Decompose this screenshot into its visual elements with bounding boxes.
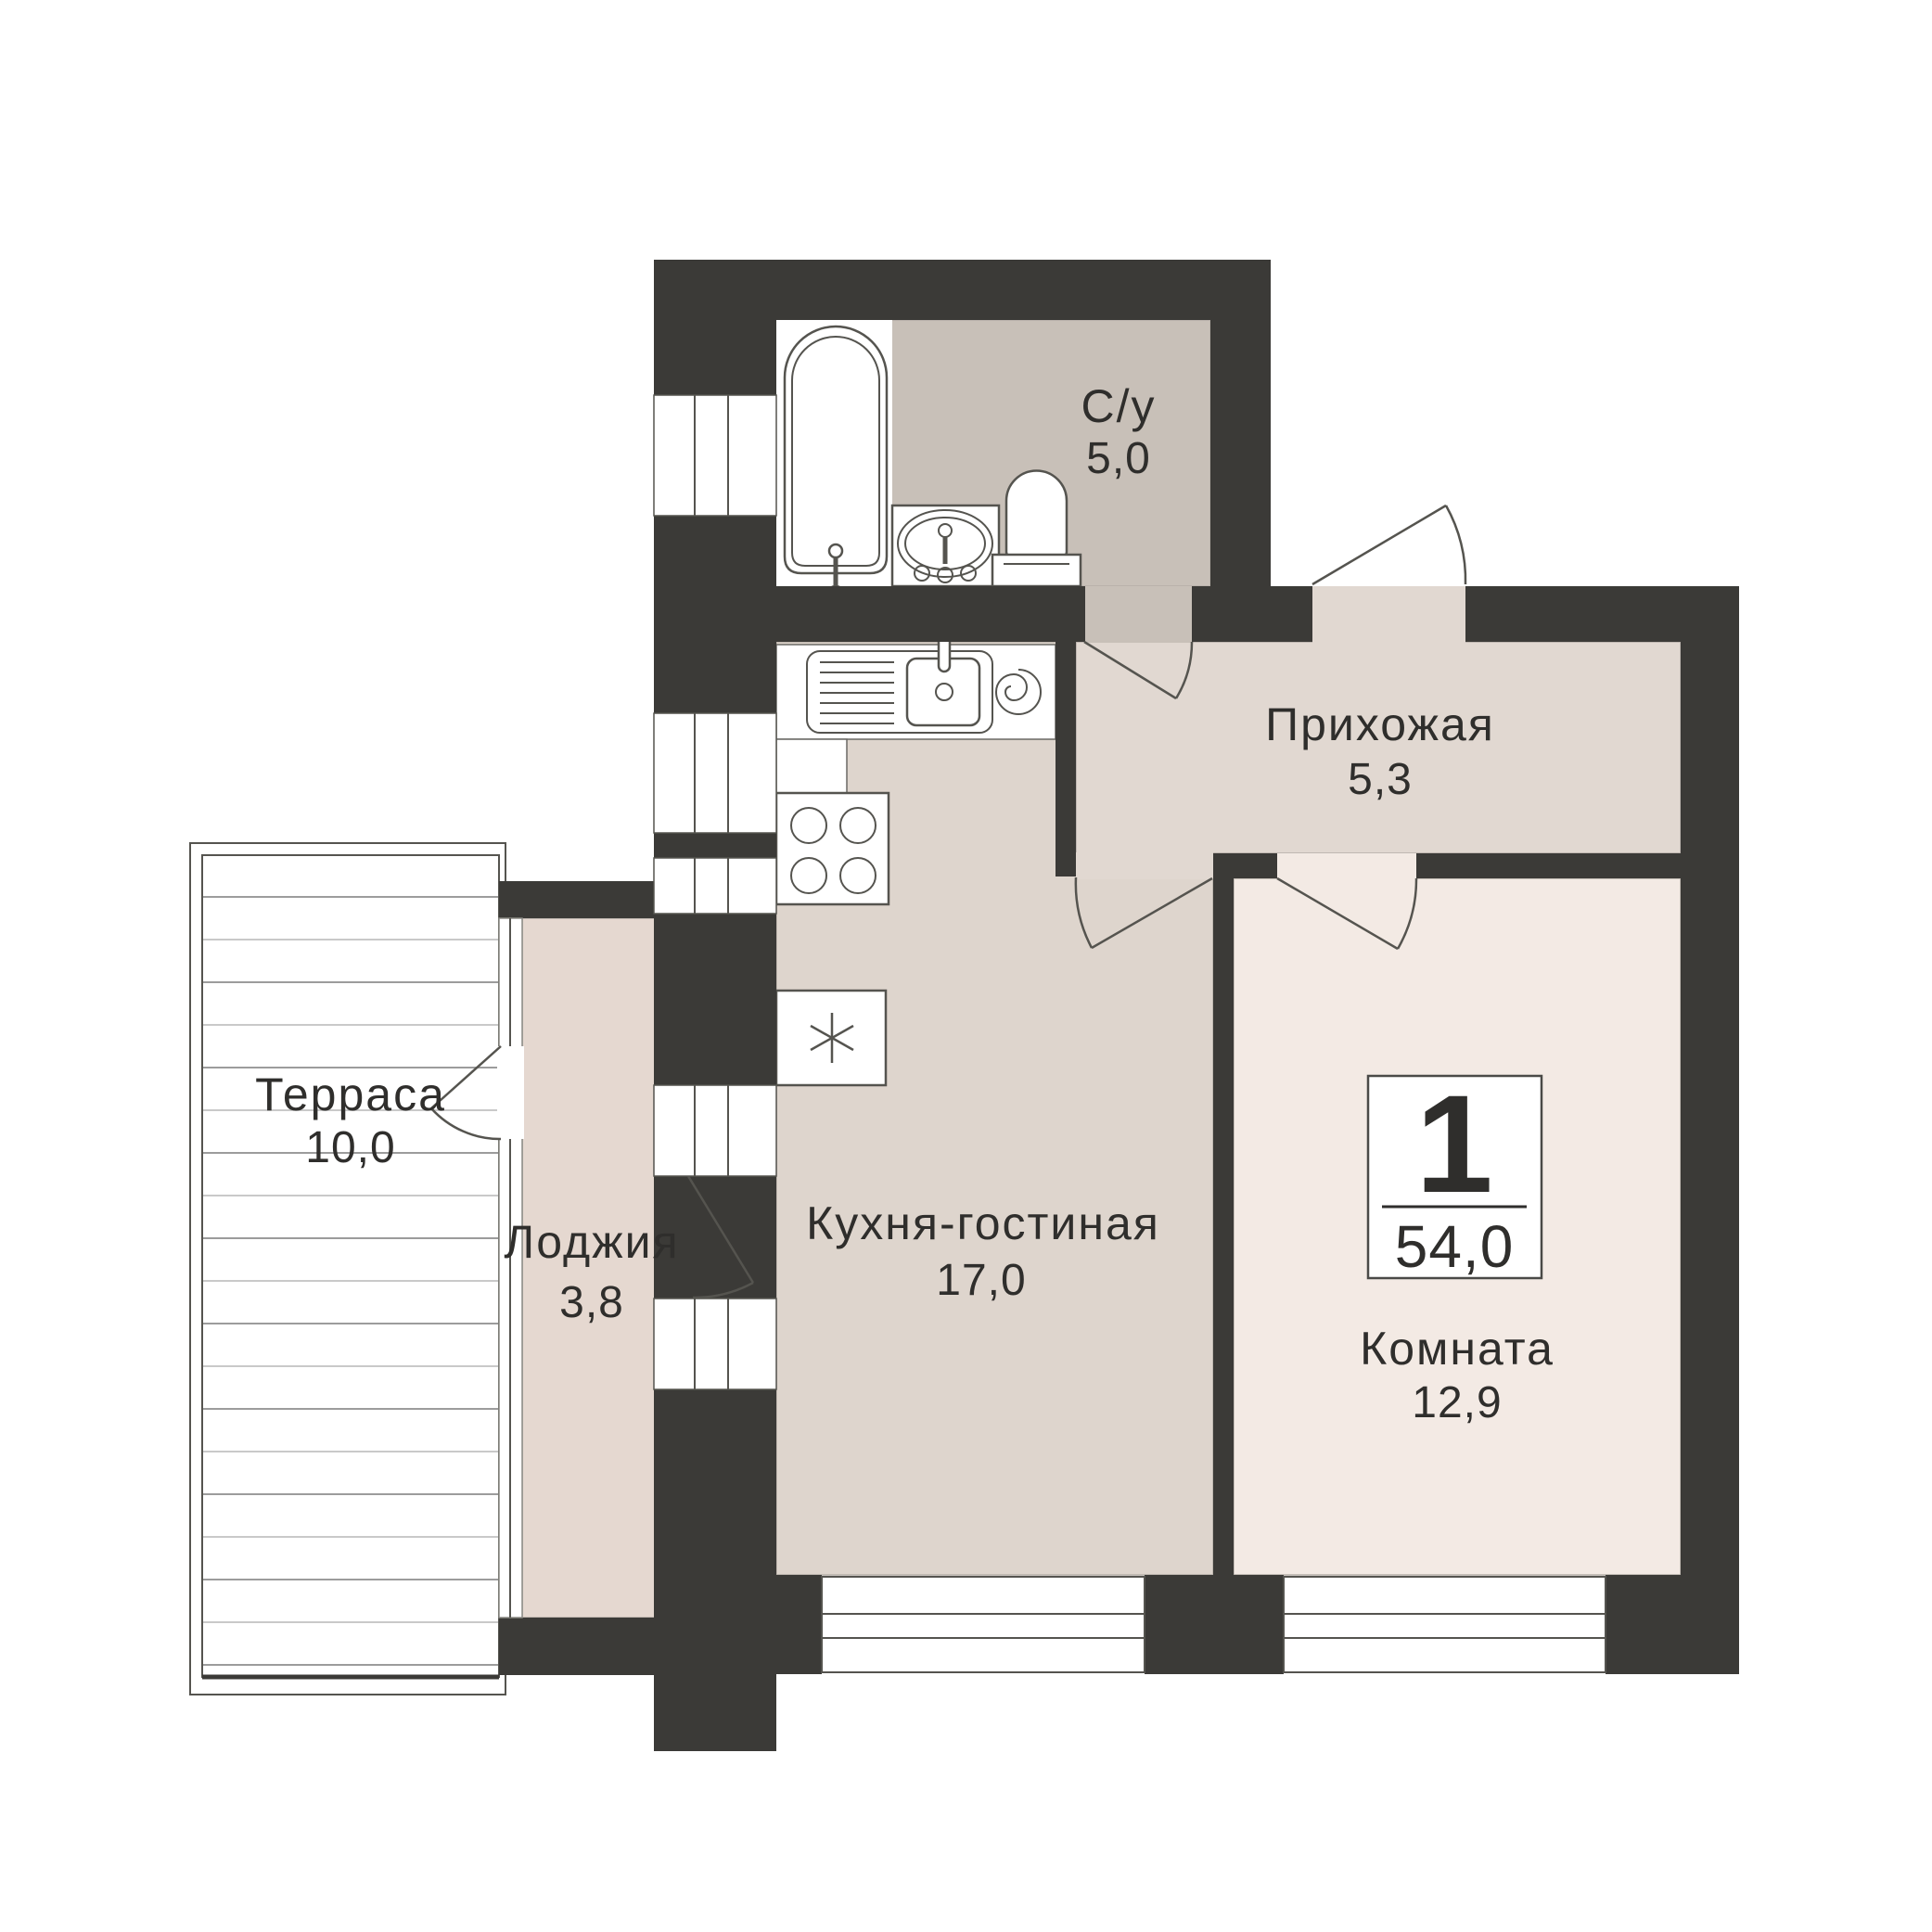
kitchen-living-area: 17,0 [936, 1256, 1026, 1305]
window-icon [654, 395, 776, 516]
window-icon [654, 1085, 776, 1176]
room-door-opening [1277, 853, 1416, 879]
loggia-label: Лоджия [504, 1216, 679, 1268]
terrace [190, 843, 505, 1695]
terrace-decking [202, 855, 499, 1677]
entrance-door-icon [1312, 505, 1465, 584]
badge-rooms-count: 1 [1415, 1066, 1492, 1222]
window-icon [654, 1299, 776, 1389]
bathroom-area: 5,0 [1086, 434, 1151, 483]
terrace-area: 10,0 [305, 1123, 395, 1172]
hallway-label: Прихожая [1265, 698, 1495, 750]
kitchen-living-label: Кухня-гостиная [806, 1197, 1160, 1249]
wall-east [1681, 586, 1739, 1674]
terrace-label: Терраса [255, 1068, 446, 1120]
window-icon [822, 1577, 1145, 1672]
hallway-area: 5,3 [1348, 755, 1413, 804]
loggia-area: 3,8 [559, 1278, 624, 1327]
washbasin-icon [892, 505, 999, 586]
wall-bottom-left-pier [654, 1575, 776, 1751]
room-label: Комната [1360, 1323, 1555, 1375]
floor-plan-page: С/у 5,0 Прихожая 5,3 Кухня-гостиная 17,0… [0, 0, 1932, 1932]
floor-plan-drawing: С/у 5,0 Прихожая 5,3 Кухня-гостиная 17,0… [0, 0, 1932, 1932]
bathroom-label: С/у [1081, 380, 1157, 432]
kitchen-counter-left [776, 739, 847, 793]
wall-bathroom-right [1210, 260, 1271, 586]
bathroom-door-opening [1084, 586, 1192, 643]
apartment-badge: 1 54,0 [1368, 1066, 1542, 1280]
stove-icon [776, 793, 889, 904]
loggia-floor [522, 918, 658, 1618]
wall-bathroom-bottom-right [1192, 586, 1271, 642]
room-area: 12,9 [1412, 1378, 1502, 1427]
washing-machine-icon [776, 991, 886, 1085]
wall-hall-top-left [1271, 586, 1312, 642]
terrace-door-gap [497, 1046, 524, 1139]
wall-loggia-top [499, 881, 658, 918]
wall-bottom-middle [1145, 1575, 1284, 1674]
loggia-glazing [497, 918, 524, 1618]
badge-total-area: 54,0 [1395, 1213, 1515, 1280]
wall-bathroom-bottom-left [776, 586, 1085, 642]
window-icon [654, 713, 776, 833]
window-icon [1284, 1577, 1606, 1672]
wall-bottom-right [1606, 1575, 1739, 1674]
hallway-kitchen-opening [1076, 852, 1213, 879]
wall-loggia-bottom [499, 1618, 658, 1675]
wall-room-top-right [1416, 853, 1681, 878]
bathtub-icon [785, 326, 887, 603]
window-icon [654, 858, 776, 914]
entrance-opening [1312, 586, 1465, 644]
wall-hall-kitchen [1056, 642, 1076, 876]
wall-kitchen-room [1213, 853, 1234, 1575]
